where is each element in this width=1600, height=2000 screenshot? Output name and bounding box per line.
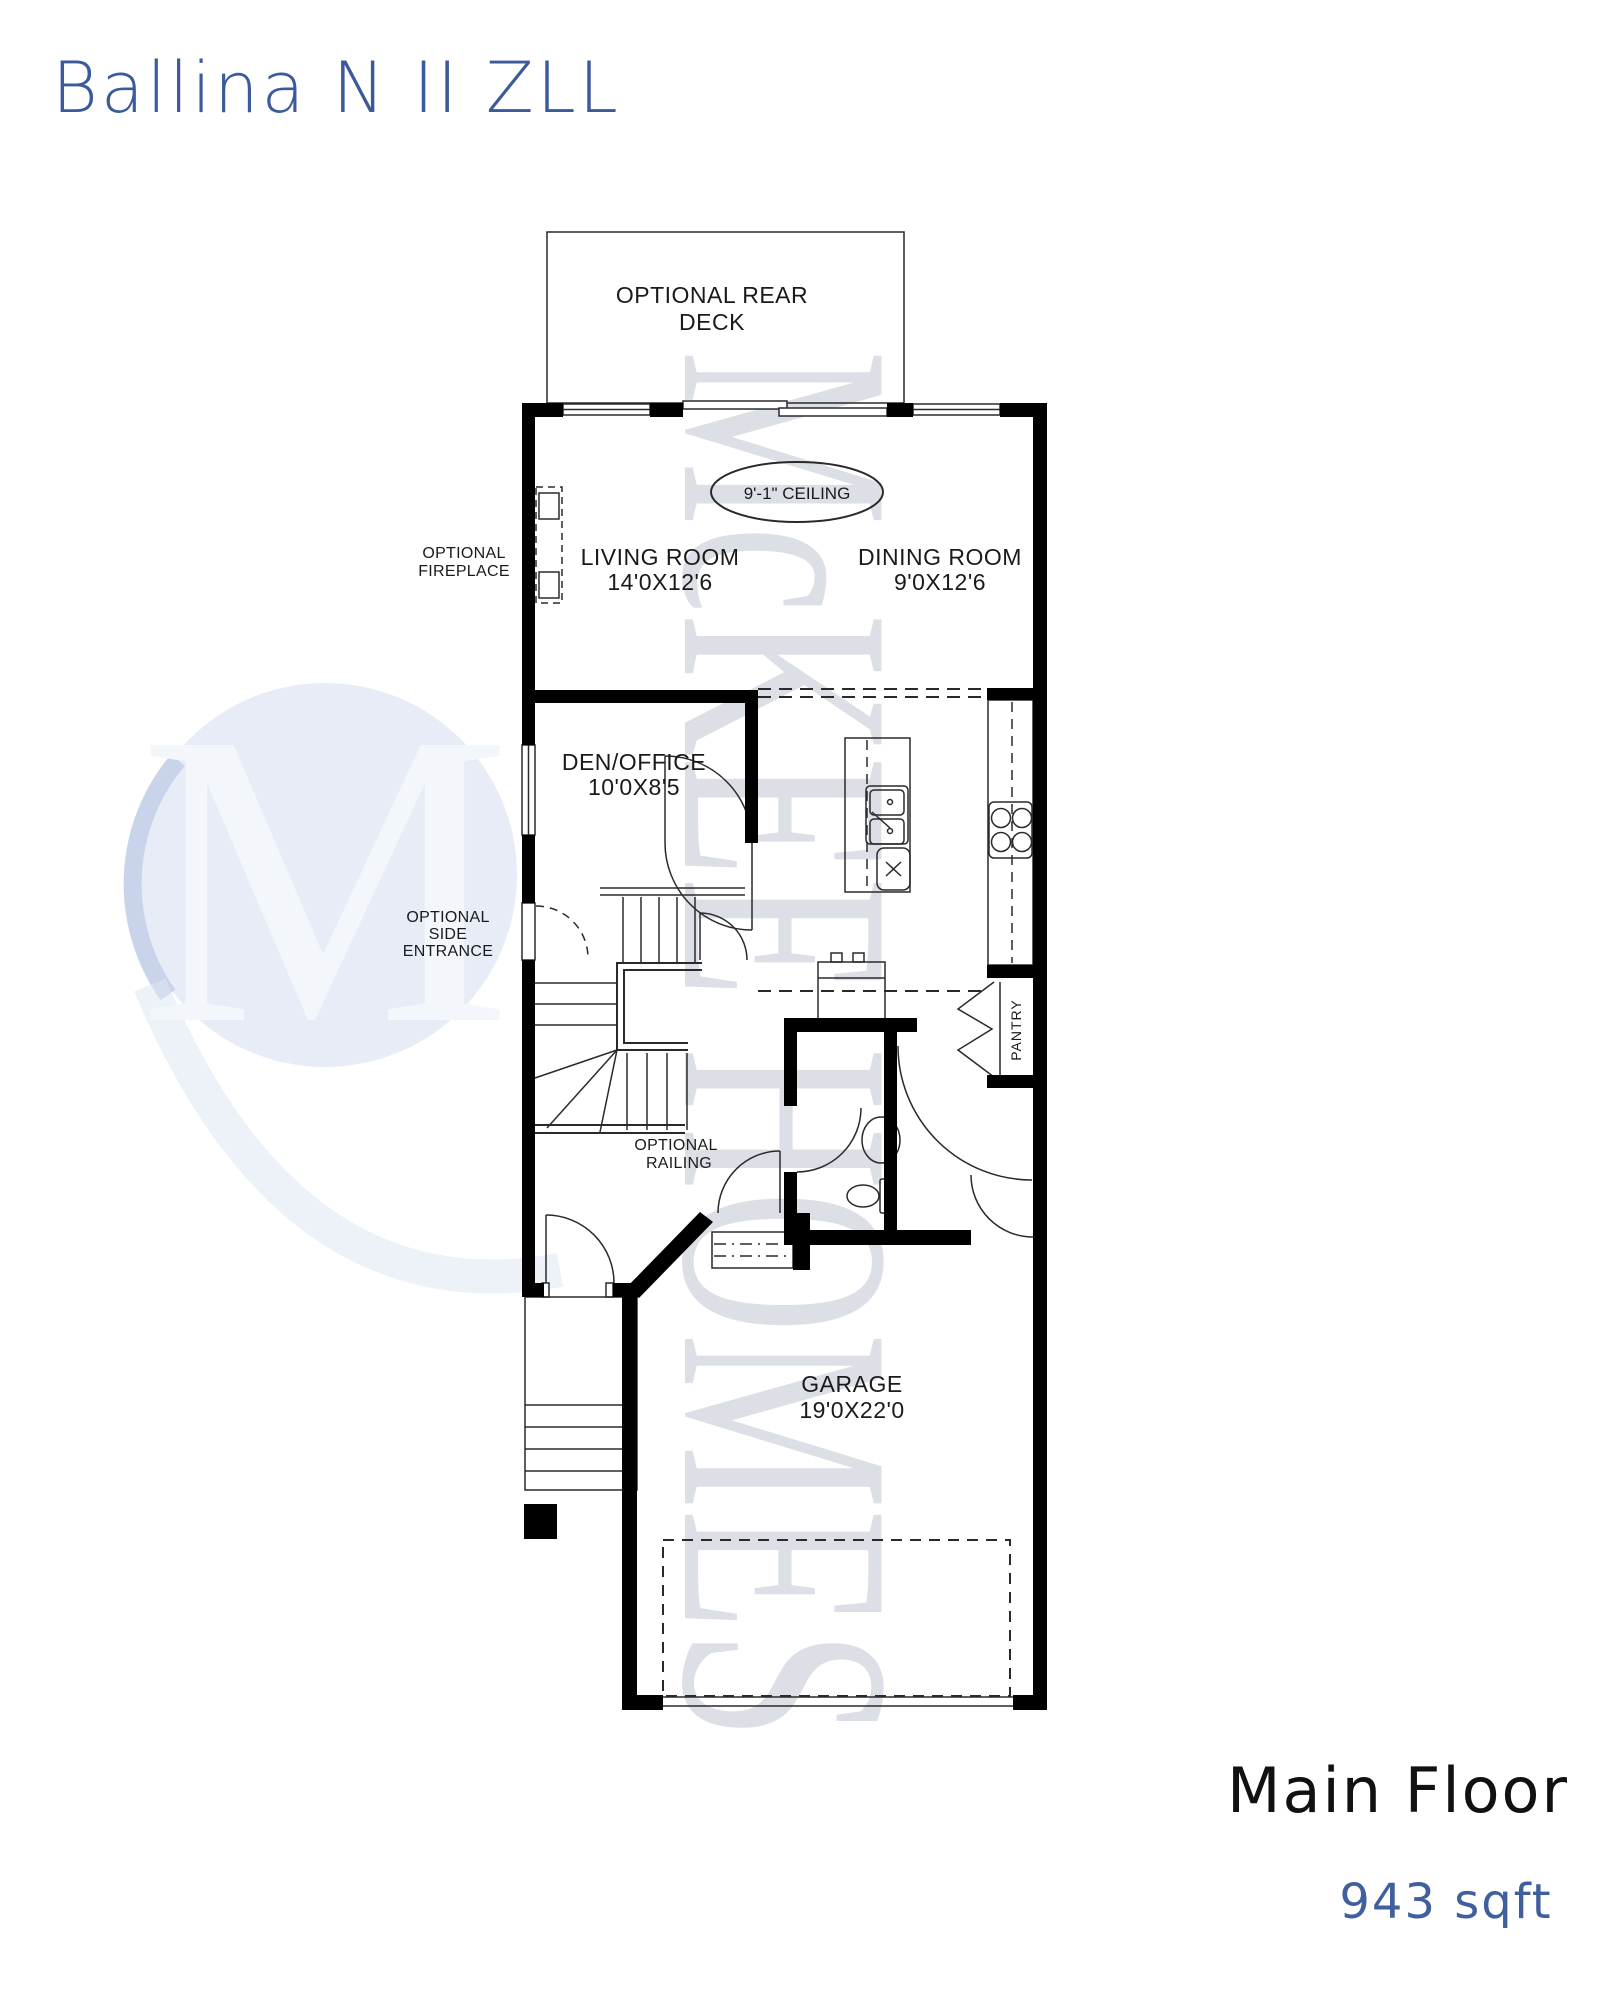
railing-label-1: OPTIONAL (634, 1137, 717, 1154)
dining-room-name: DINING ROOM (858, 544, 1022, 570)
railing-label-2: RAILING (646, 1155, 712, 1172)
pantry-bifold-doors (958, 982, 1000, 1077)
floor-plan-sheet: M McKEE HOMES Ballina N II ZLL OPTIONAL … (0, 0, 1600, 2000)
dining-room-dims: 9'0X12'6 (894, 569, 986, 595)
window-dining (913, 404, 1000, 415)
area-label: 943 sqft (1339, 1874, 1552, 1930)
deck-label-1: OPTIONAL REAR (616, 282, 808, 308)
living-room-dims: 14'0X12'6 (607, 569, 712, 595)
floor-name: Main Floor (1227, 1754, 1569, 1827)
fireplace-label-2: FIREPLACE (418, 563, 510, 580)
side-entrance-door-swing (536, 906, 588, 958)
living-room-name: LIVING ROOM (581, 544, 740, 570)
optional-fireplace-icon (536, 487, 562, 603)
side-entrance-opening (522, 903, 535, 960)
garage-name: GARAGE (801, 1371, 902, 1397)
side-entrance-label-3: ENTRANCE (403, 943, 493, 960)
ceiling-note: 9'-1" CEILING (744, 484, 851, 503)
window-den (522, 745, 535, 835)
garage-hall-door-swing (971, 1175, 1033, 1237)
den-office-name: DEN/OFFICE (562, 749, 706, 775)
deck-label-2: DECK (679, 309, 745, 335)
side-entrance-label-2: SIDE (429, 926, 468, 943)
den-office-dims: 10'0X8'5 (588, 774, 680, 800)
logo-m-letter: M (138, 646, 511, 1111)
side-entrance-label-1: OPTIONAL (406, 909, 489, 926)
window-living (563, 404, 650, 415)
pantry-label: PANTRY (1008, 999, 1024, 1061)
garage-dims: 19'0X22'0 (799, 1397, 904, 1423)
page-title: Ballina N II ZLL (52, 47, 621, 129)
fireplace-label-1: OPTIONAL (422, 545, 505, 562)
kitchen-counter (988, 700, 1033, 965)
porch-post (524, 1504, 557, 1539)
